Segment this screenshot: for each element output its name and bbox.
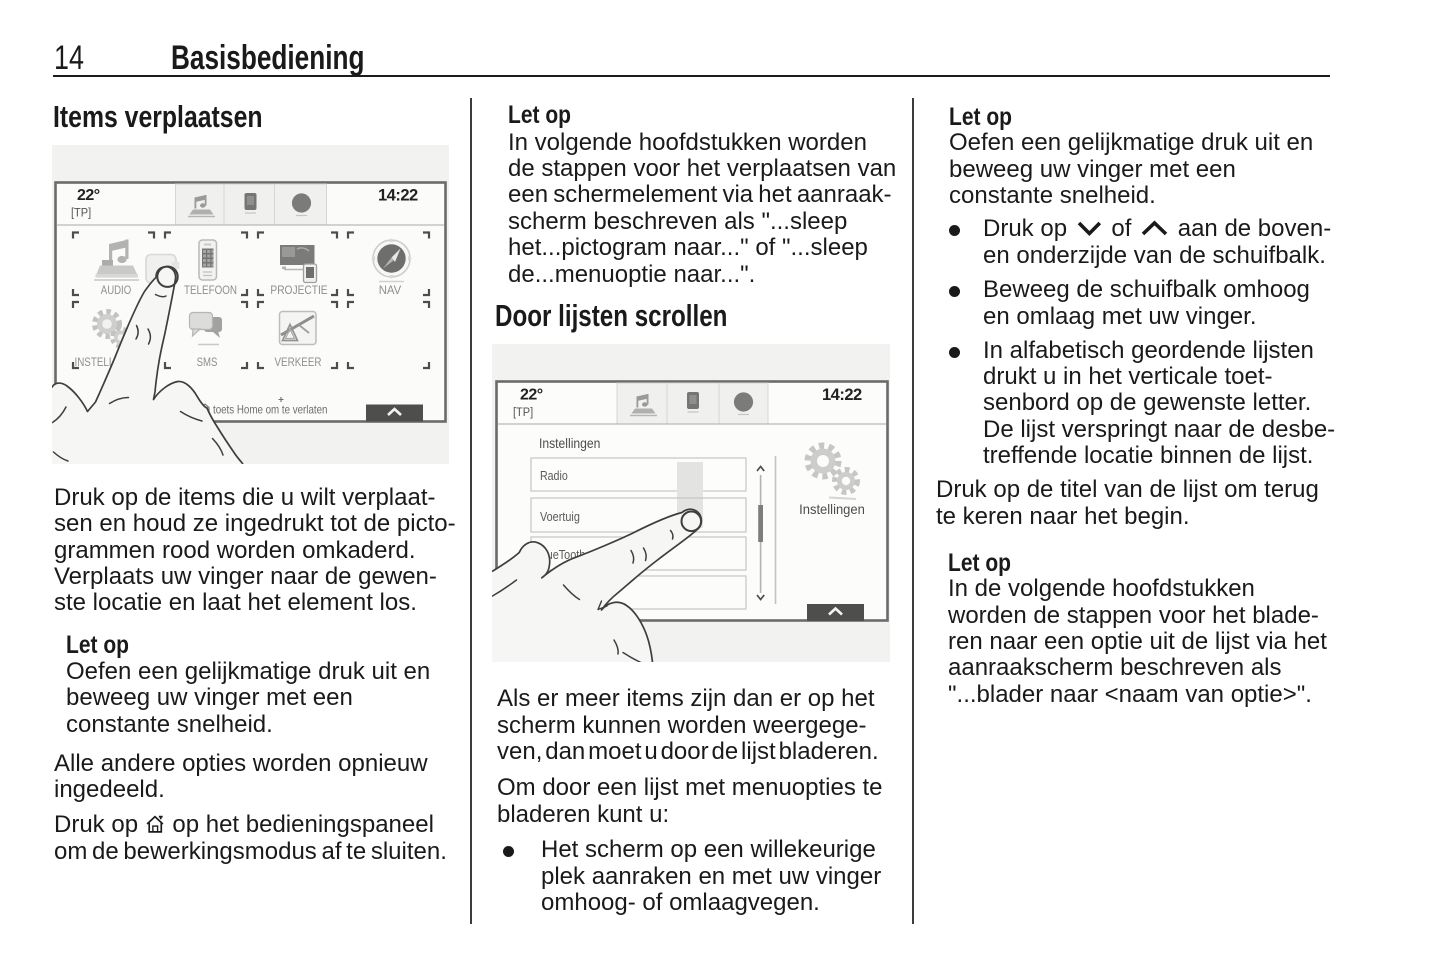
svg-text:Instellingen: Instellingen [799, 502, 865, 518]
svg-text:toets Home om te verlaten: toets Home om te verlaten [213, 404, 328, 417]
svg-text:Instellingen: Instellingen [539, 435, 600, 451]
svg-text:[TP]: [TP] [71, 207, 91, 219]
svg-text:Radio: Radio [540, 469, 568, 483]
svg-text:NAV: NAV [379, 284, 402, 297]
svg-text:TELEFOON: TELEFOON [184, 284, 237, 297]
svg-text:[TP]: [TP] [513, 407, 533, 419]
svg-text:22°: 22° [520, 387, 543, 404]
svg-text:14:22: 14:22 [378, 187, 418, 205]
svg-text:SMS: SMS [197, 356, 218, 369]
svg-text:22°: 22° [77, 187, 100, 204]
svg-text:AUDIO: AUDIO [101, 284, 131, 297]
svg-text:PROJECTIE: PROJECTIE [270, 284, 327, 297]
svg-text:14:22: 14:22 [822, 386, 862, 404]
svg-text:Voertuig: Voertuig [540, 510, 580, 524]
svg-text:VERKEER: VERKEER [274, 356, 321, 369]
